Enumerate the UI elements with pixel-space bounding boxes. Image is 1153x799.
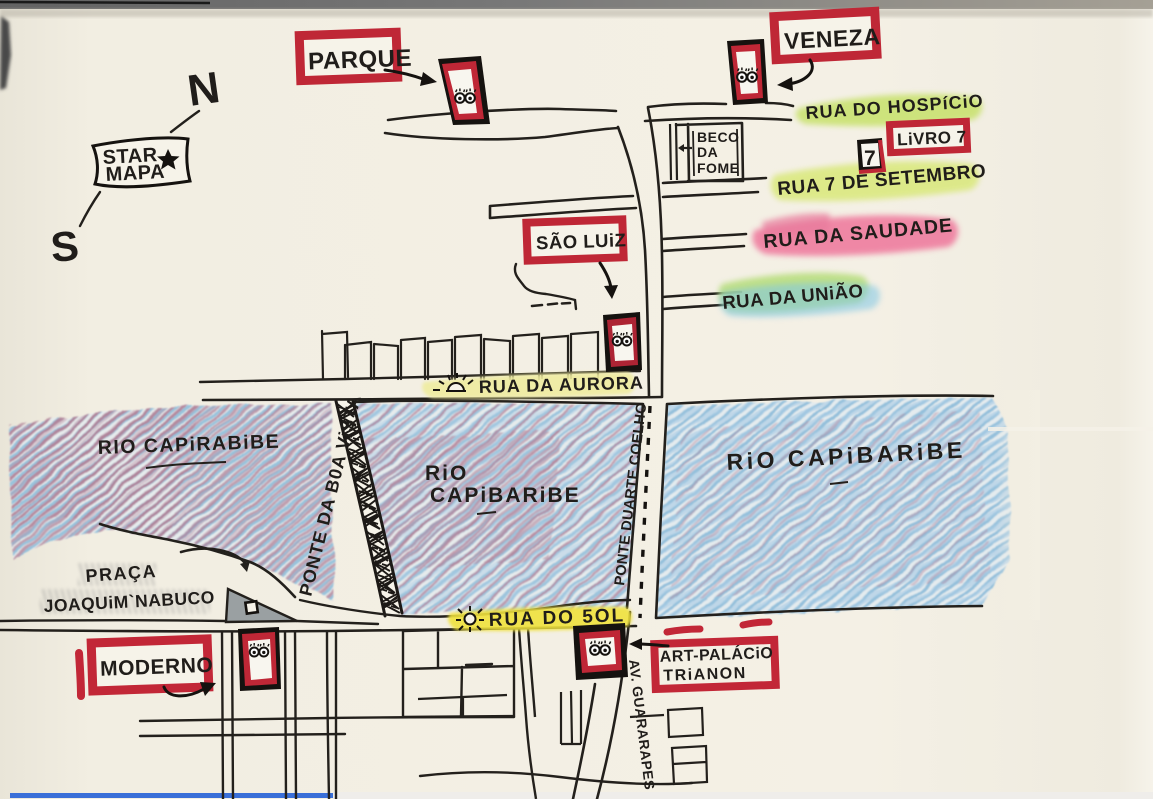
svg-text:TRiANON: TRiANON: [663, 665, 747, 685]
svg-text:BECO: BECO: [697, 129, 739, 145]
svg-text:RiO: RiO: [425, 462, 468, 485]
svg-text:DA: DA: [697, 144, 718, 160]
svg-text:N: N: [185, 63, 223, 116]
svg-text:LiVRO 7: LiVRO 7: [897, 127, 967, 149]
svg-text:FOME: FOME: [697, 160, 739, 176]
svg-text:VENEZA: VENEZA: [784, 23, 882, 54]
svg-text:CAPiBARiBE: CAPiBARiBE: [430, 484, 581, 507]
svg-text:7: 7: [864, 147, 876, 170]
svg-text:SÃO LUiZ: SÃO LUiZ: [536, 229, 627, 253]
svg-text:MODERNO: MODERNO: [100, 654, 214, 681]
svg-text:S: S: [49, 222, 81, 271]
svg-text:MAPA: MAPA: [105, 161, 165, 186]
